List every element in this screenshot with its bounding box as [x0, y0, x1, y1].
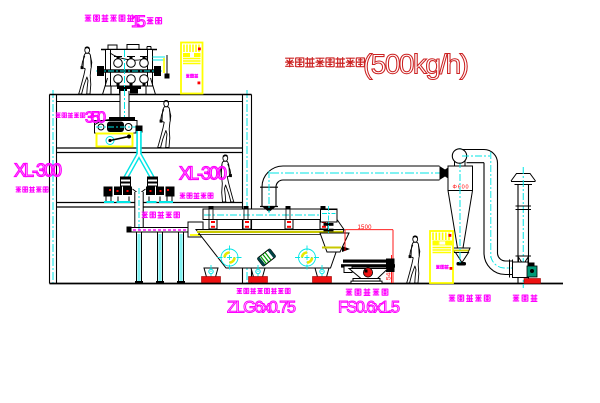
svg-text:FS0.6x1.5: FS0.6x1.5 [338, 299, 400, 317]
svg-text:1500: 1500 [358, 225, 373, 231]
svg-text:350: 350 [85, 110, 106, 127]
svg-text:XL-300: XL-300 [179, 164, 227, 184]
svg-text:1.5: 1.5 [131, 12, 146, 31]
svg-text:ZLG6x0.75: ZLG6x0.75 [227, 299, 296, 317]
svg-text:(500kg/h): (500kg/h) [363, 49, 469, 80]
svg-text:XL-300: XL-300 [14, 161, 62, 181]
